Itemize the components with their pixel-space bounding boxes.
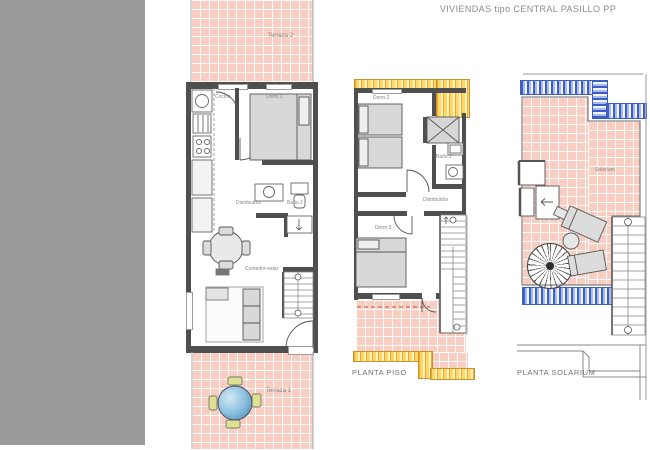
bed-dorm3 — [356, 238, 406, 287]
floorplan-sheet: VIVIENDAS tipo CENTRAL PASILLO PP — [0, 0, 650, 450]
room-label-distribuidor: Distribuidor — [236, 200, 261, 206]
room-label-bano2: Baño 2 — [436, 154, 452, 160]
room-label-cocina: Cocina — [215, 94, 231, 100]
kitchen-fixtures — [192, 88, 214, 233]
plan-linework — [0, 0, 650, 450]
room-label-solarium: Solarium — [595, 167, 615, 173]
wardrobe-x — [427, 117, 459, 143]
room-label-dorm3: Dorm.3 — [375, 225, 391, 231]
bed-dorm1 — [250, 94, 311, 160]
sun-loungers — [554, 206, 607, 276]
room-label-comedor: Comedor-estar — [245, 266, 278, 272]
stairs-ground — [284, 272, 313, 318]
solarium-cabinets — [519, 161, 559, 219]
beds-dorm2 — [358, 104, 402, 168]
bathroom-1-fixtures — [255, 183, 312, 233]
room-label-dorm1: Dorm.1 — [266, 94, 282, 100]
terrace-table-set — [209, 377, 261, 428]
room-label-terraza2: Terraza 2 — [268, 33, 293, 40]
sofa — [206, 269, 263, 342]
plan-label-piso: PLANTA PISO — [352, 369, 407, 377]
room-label-terraza1: Terraza 1 — [266, 388, 291, 395]
room-label-bano1: Baño.1 — [287, 200, 303, 206]
room-label-distribuidor-piso: Distribuidor — [423, 197, 448, 203]
dining-table — [203, 227, 250, 269]
bathroom-2-fixtures — [446, 143, 463, 179]
stairs-piso — [440, 215, 467, 335]
plan-label-solarium: PLANTA SOLARIUM — [517, 369, 595, 377]
room-label-dorm2: Dorm.2 — [373, 95, 389, 101]
stairs-solarium — [612, 217, 645, 335]
